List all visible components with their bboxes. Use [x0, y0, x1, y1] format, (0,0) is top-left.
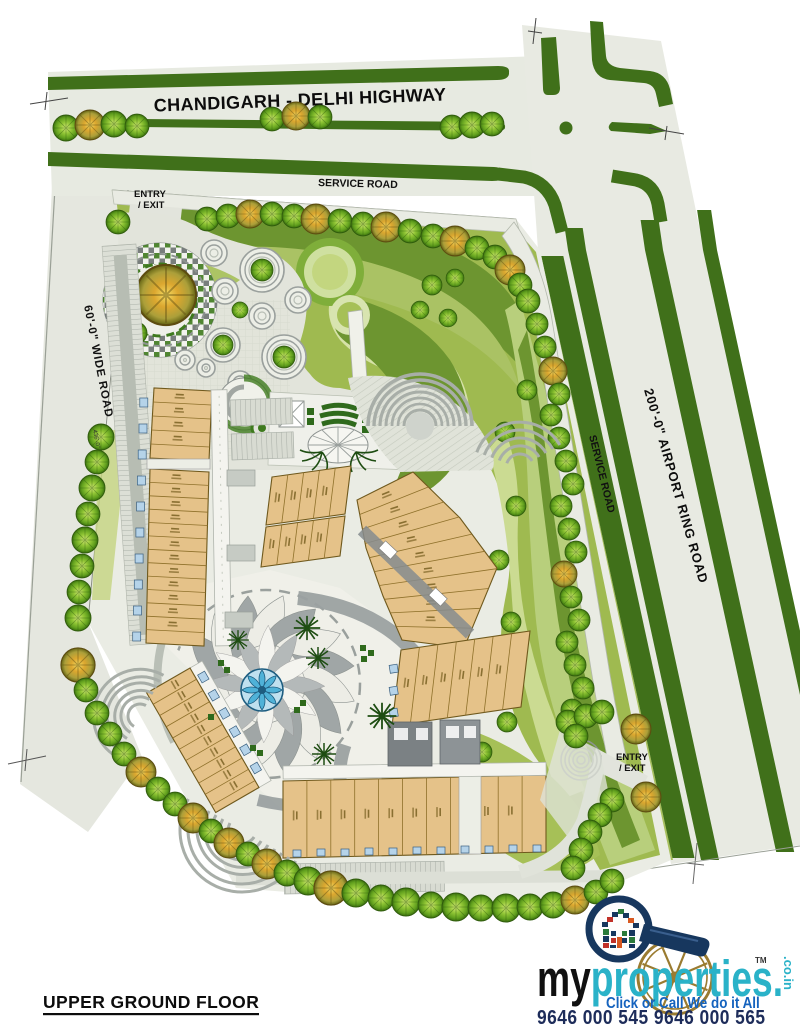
svg-text:/ EXIT: / EXIT: [138, 200, 165, 211]
svg-text:.co.in: .co.in: [781, 956, 796, 990]
svg-text:TM: TM: [755, 956, 767, 965]
svg-text:ENTRY: ENTRY: [616, 752, 649, 763]
svg-text:UPPER GROUND FLOOR: UPPER GROUND FLOOR: [43, 992, 259, 1012]
svg-text:9646 000 545 9646 000 565: 9646 000 545 9646 000 565: [537, 1006, 765, 1028]
svg-text:ENTRY: ENTRY: [134, 189, 167, 200]
svg-text:SERVICE ROAD: SERVICE ROAD: [318, 177, 398, 191]
svg-text:/ EXIT: / EXIT: [619, 763, 646, 774]
